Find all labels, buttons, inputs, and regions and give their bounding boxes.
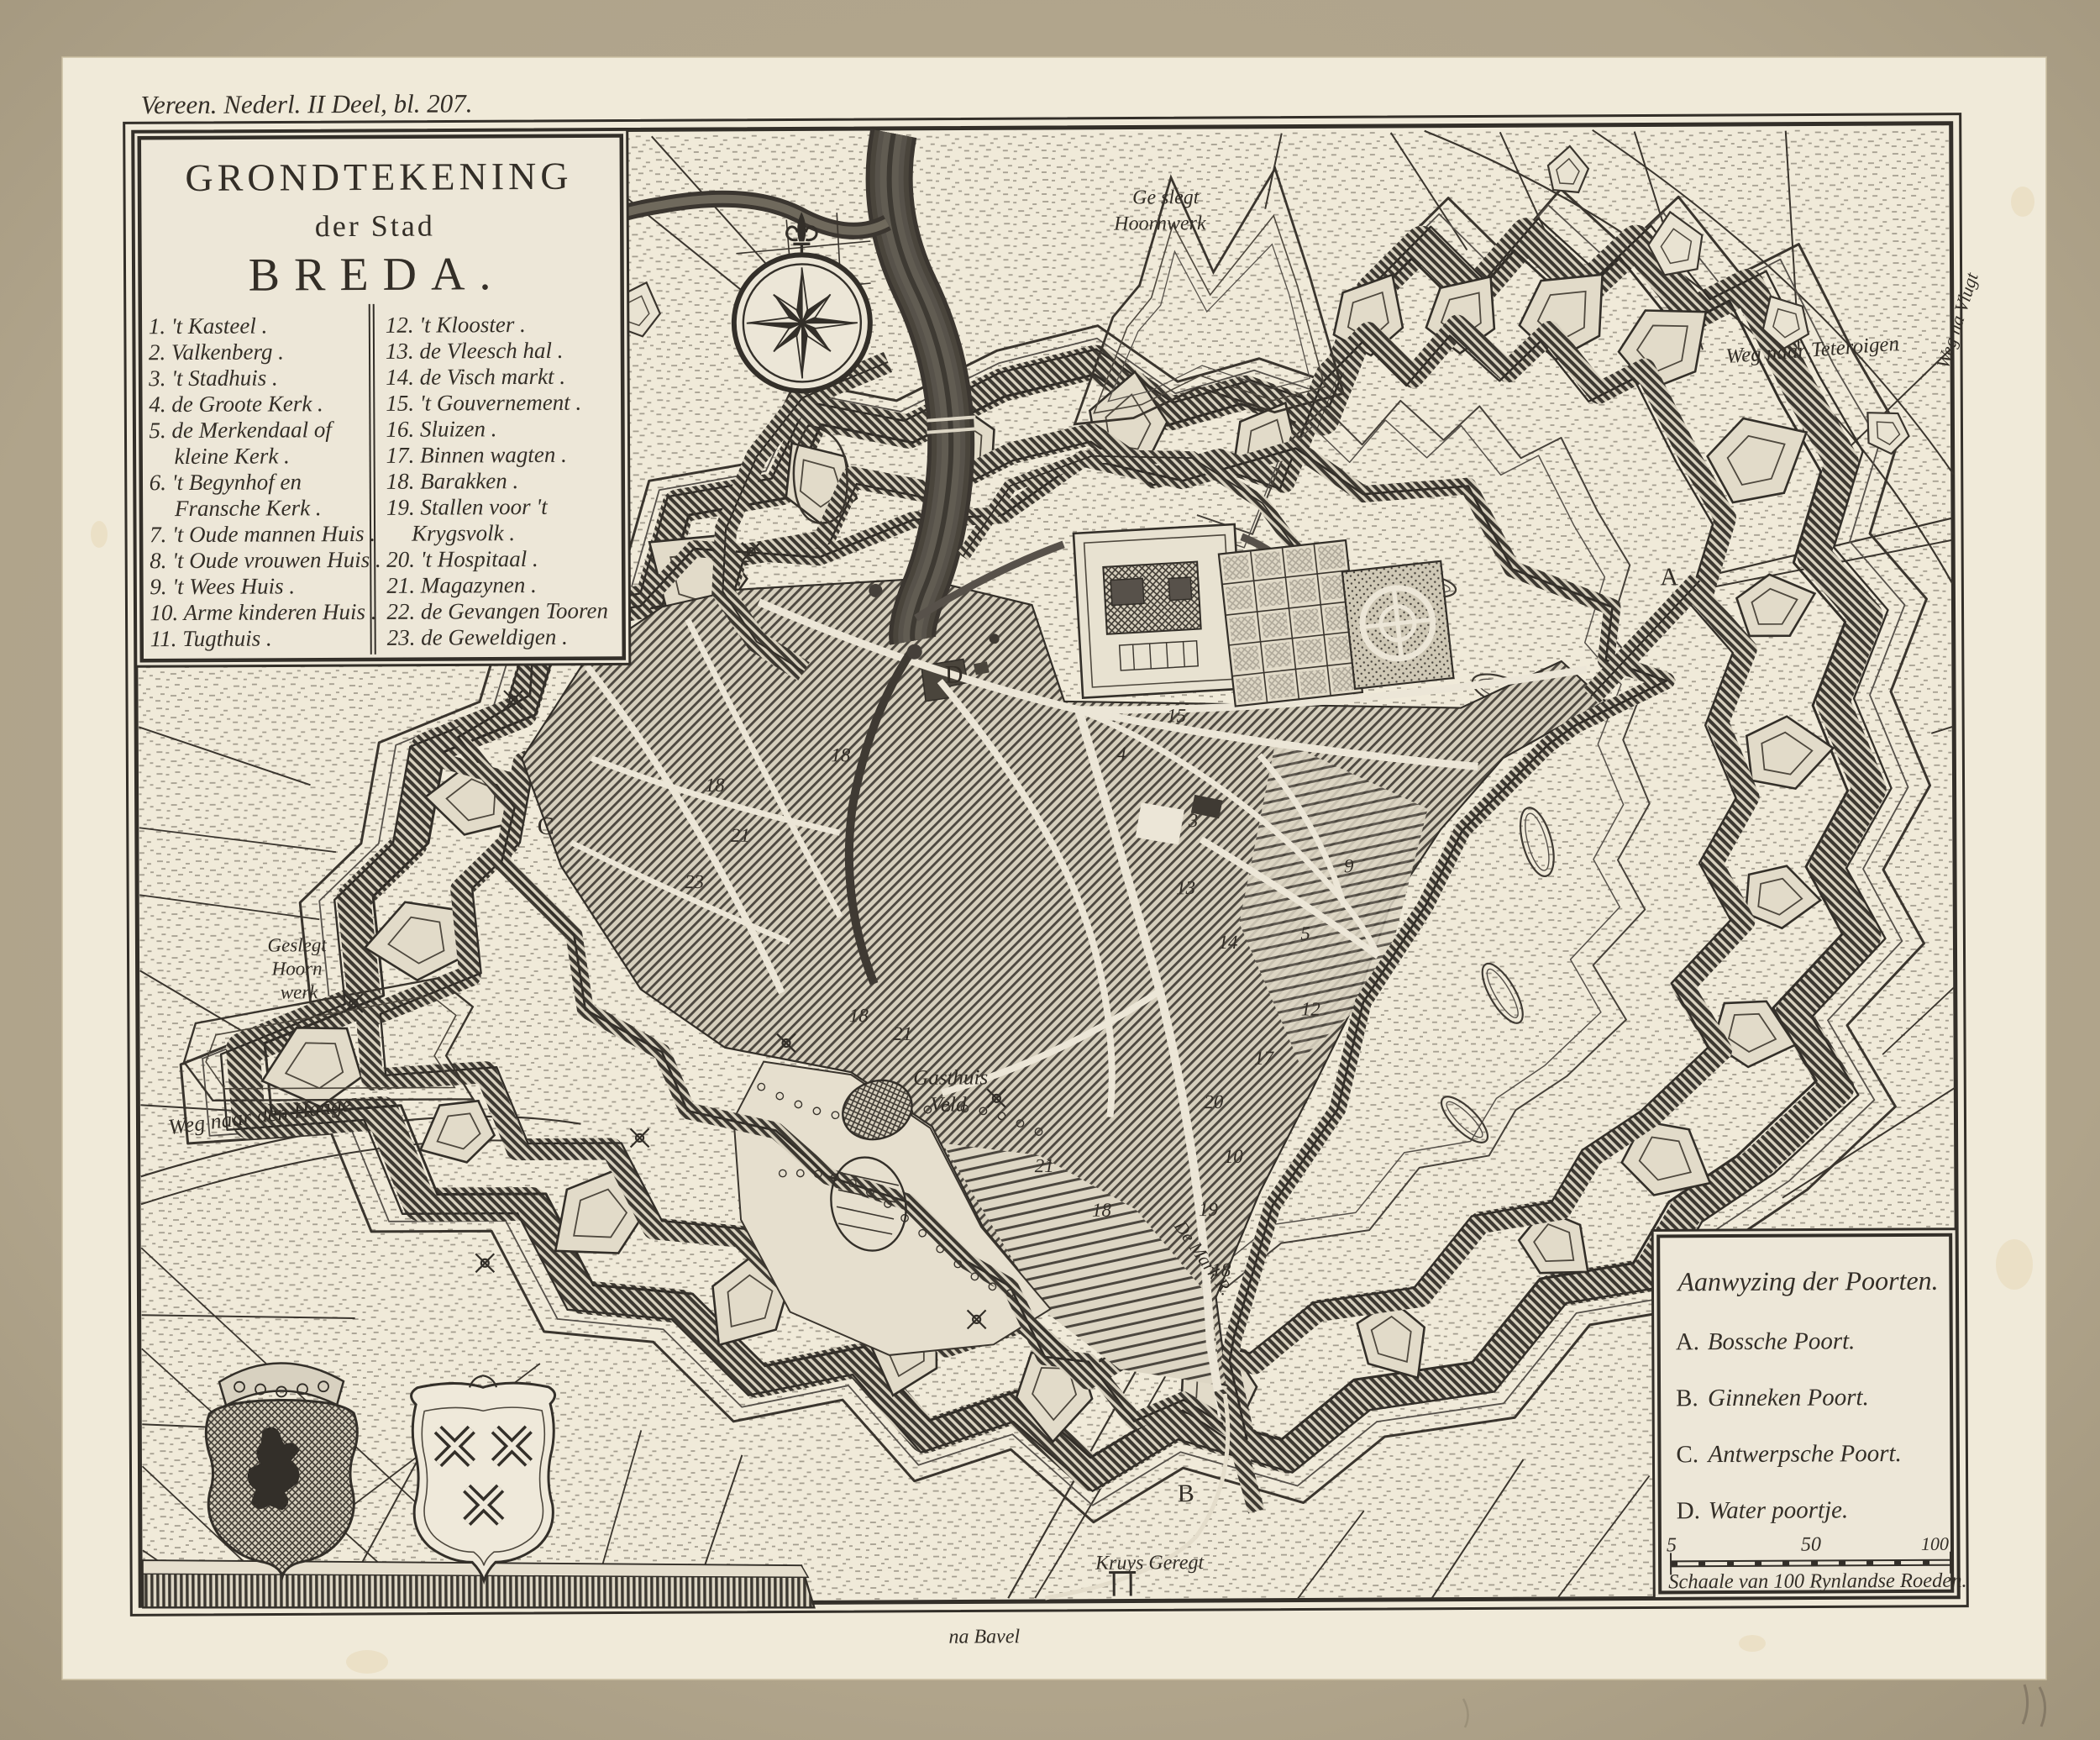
svg-text:4. de Groote Kerk .: 4. de Groote Kerk . xyxy=(149,391,323,417)
svg-text:14: 14 xyxy=(1218,932,1237,953)
svg-text:20: 20 xyxy=(1204,1091,1224,1112)
svg-text:17. Binnen wagten .: 17. Binnen wagten . xyxy=(386,442,567,468)
svg-text:18: 18 xyxy=(849,1005,869,1026)
svg-text:der Stad: der Stad xyxy=(315,209,435,244)
svg-text:Antwerpsche Poort.: Antwerpsche Poort. xyxy=(1706,1440,1902,1468)
svg-text:werk: werk xyxy=(281,981,319,1002)
svg-text:Ge slegt: Ge slegt xyxy=(1132,187,1200,208)
svg-text:3. 't Stadhuis .: 3. 't Stadhuis . xyxy=(148,365,278,391)
svg-text:21: 21 xyxy=(1035,1155,1054,1176)
svg-text:B.: B. xyxy=(1676,1385,1698,1411)
svg-text:18. Barakken .: 18. Barakken . xyxy=(386,468,519,494)
svg-text:20. 't Hospitaal .: 20. 't Hospitaal . xyxy=(386,546,538,572)
svg-text:Krygsvolk .: Krygsvolk . xyxy=(411,520,515,546)
svg-text:A.: A. xyxy=(1676,1328,1699,1355)
svg-text:15. 't Gouvernement .: 15. 't Gouvernement . xyxy=(386,390,581,416)
svg-text:C.: C. xyxy=(1676,1441,1698,1468)
svg-text:15: 15 xyxy=(1167,705,1186,726)
svg-text:6. 't Begynhof en: 6. 't Begynhof en xyxy=(150,469,302,495)
svg-text:16. Sluizen .: 16. Sluizen . xyxy=(386,416,496,442)
svg-text:4: 4 xyxy=(1116,744,1126,765)
svg-text:13: 13 xyxy=(1176,877,1195,898)
svg-text:D: D xyxy=(945,660,963,688)
svg-text:Ginneken Poort.: Ginneken Poort. xyxy=(1708,1384,1869,1411)
svg-text:18: 18 xyxy=(1211,1259,1231,1280)
svg-text:18: 18 xyxy=(831,744,851,765)
svg-text:18: 18 xyxy=(705,775,725,796)
svg-text:9: 9 xyxy=(1344,855,1354,876)
svg-text:na Bavel: na Bavel xyxy=(948,1626,1020,1648)
svg-text:21. Magazynen .: 21. Magazynen . xyxy=(386,572,537,598)
svg-text:B: B xyxy=(1178,1480,1194,1507)
svg-text:5: 5 xyxy=(1667,1534,1677,1556)
svg-text:23. de Geweldigen .: 23. de Geweldigen . xyxy=(387,624,568,650)
svg-text:100: 100 xyxy=(1921,1533,1949,1554)
svg-text:23: 23 xyxy=(685,871,704,892)
svg-text:Schaale van 100 Rynlandse Roed: Schaale van 100 Rynlandse Roeden. xyxy=(1668,1569,1967,1594)
svg-text:2. Valkenberg .: 2. Valkenberg . xyxy=(149,339,284,365)
svg-text:8. 't Oude vrouwen Huis .: 8. 't Oude vrouwen Huis . xyxy=(150,547,381,573)
svg-text:18: 18 xyxy=(1092,1200,1112,1221)
svg-text:Gasthuis: Gasthuis xyxy=(913,1066,988,1089)
svg-text:D.: D. xyxy=(1677,1497,1700,1524)
svg-text:10: 10 xyxy=(1224,1146,1244,1167)
svg-text:5. de Merkendaal of: 5. de Merkendaal of xyxy=(149,417,334,443)
svg-text:13. de Vleesch hal .: 13. de Vleesch hal . xyxy=(386,338,564,364)
svg-text:21: 21 xyxy=(731,825,750,846)
svg-text:GRONDTEKENING: GRONDTEKENING xyxy=(185,155,572,199)
svg-text:50: 50 xyxy=(1801,1533,1821,1555)
svg-text:1. 't Kasteel .: 1. 't Kasteel . xyxy=(149,313,268,339)
svg-text:3: 3 xyxy=(1188,810,1199,831)
svg-text:21: 21 xyxy=(893,1023,912,1044)
svg-text:Veld: Veld xyxy=(930,1093,967,1116)
svg-text:kleine Kerk .: kleine Kerk . xyxy=(175,443,290,469)
svg-text:BREDA.: BREDA. xyxy=(249,248,506,301)
svg-text:17: 17 xyxy=(1254,1048,1275,1069)
svg-text:Geslegt: Geslegt xyxy=(267,934,327,955)
svg-text:Fransche Kerk .: Fransche Kerk . xyxy=(174,495,322,521)
svg-text:7. 't Oude mannen Huis .: 7. 't Oude mannen Huis . xyxy=(150,521,375,547)
svg-text:19. Stallen voor 't: 19. Stallen voor 't xyxy=(386,494,549,520)
svg-text:Aanwyzing der Poorten.: Aanwyzing der Poorten. xyxy=(1676,1265,1938,1297)
svg-text:9. 't Wees Huis .: 9. 't Wees Huis . xyxy=(150,573,295,599)
svg-text:10. Arme kinderen Huis .: 10. Arme kinderen Huis . xyxy=(150,599,376,625)
svg-text:22. de Gevangen Tooren: 22. de Gevangen Tooren xyxy=(386,598,608,624)
svg-text:Vereen. Nederl. II Deel, bl. 2: Vereen. Nederl. II Deel, bl. 207. xyxy=(140,88,472,119)
svg-text:Hoornwerk: Hoornwerk xyxy=(1113,213,1206,235)
svg-text:5: 5 xyxy=(1300,923,1310,944)
svg-text:Bossche Poort.: Bossche Poort. xyxy=(1708,1327,1856,1355)
svg-text:19: 19 xyxy=(1199,1199,1219,1220)
svg-text:Hoorn: Hoorn xyxy=(271,958,323,979)
svg-text:14. de Visch markt .: 14. de Visch markt . xyxy=(386,364,565,390)
svg-text:Water poortje.: Water poortje. xyxy=(1709,1496,1849,1524)
svg-text:12. 't Klooster .: 12. 't Klooster . xyxy=(386,312,526,338)
svg-text:11. Tugthuis .: 11. Tugthuis . xyxy=(150,625,272,651)
svg-text:12: 12 xyxy=(1301,998,1320,1019)
svg-text:A: A xyxy=(1660,563,1678,591)
svg-text:C: C xyxy=(538,812,554,840)
svg-text:Kruys Geregt: Kruys Geregt xyxy=(1095,1552,1205,1574)
